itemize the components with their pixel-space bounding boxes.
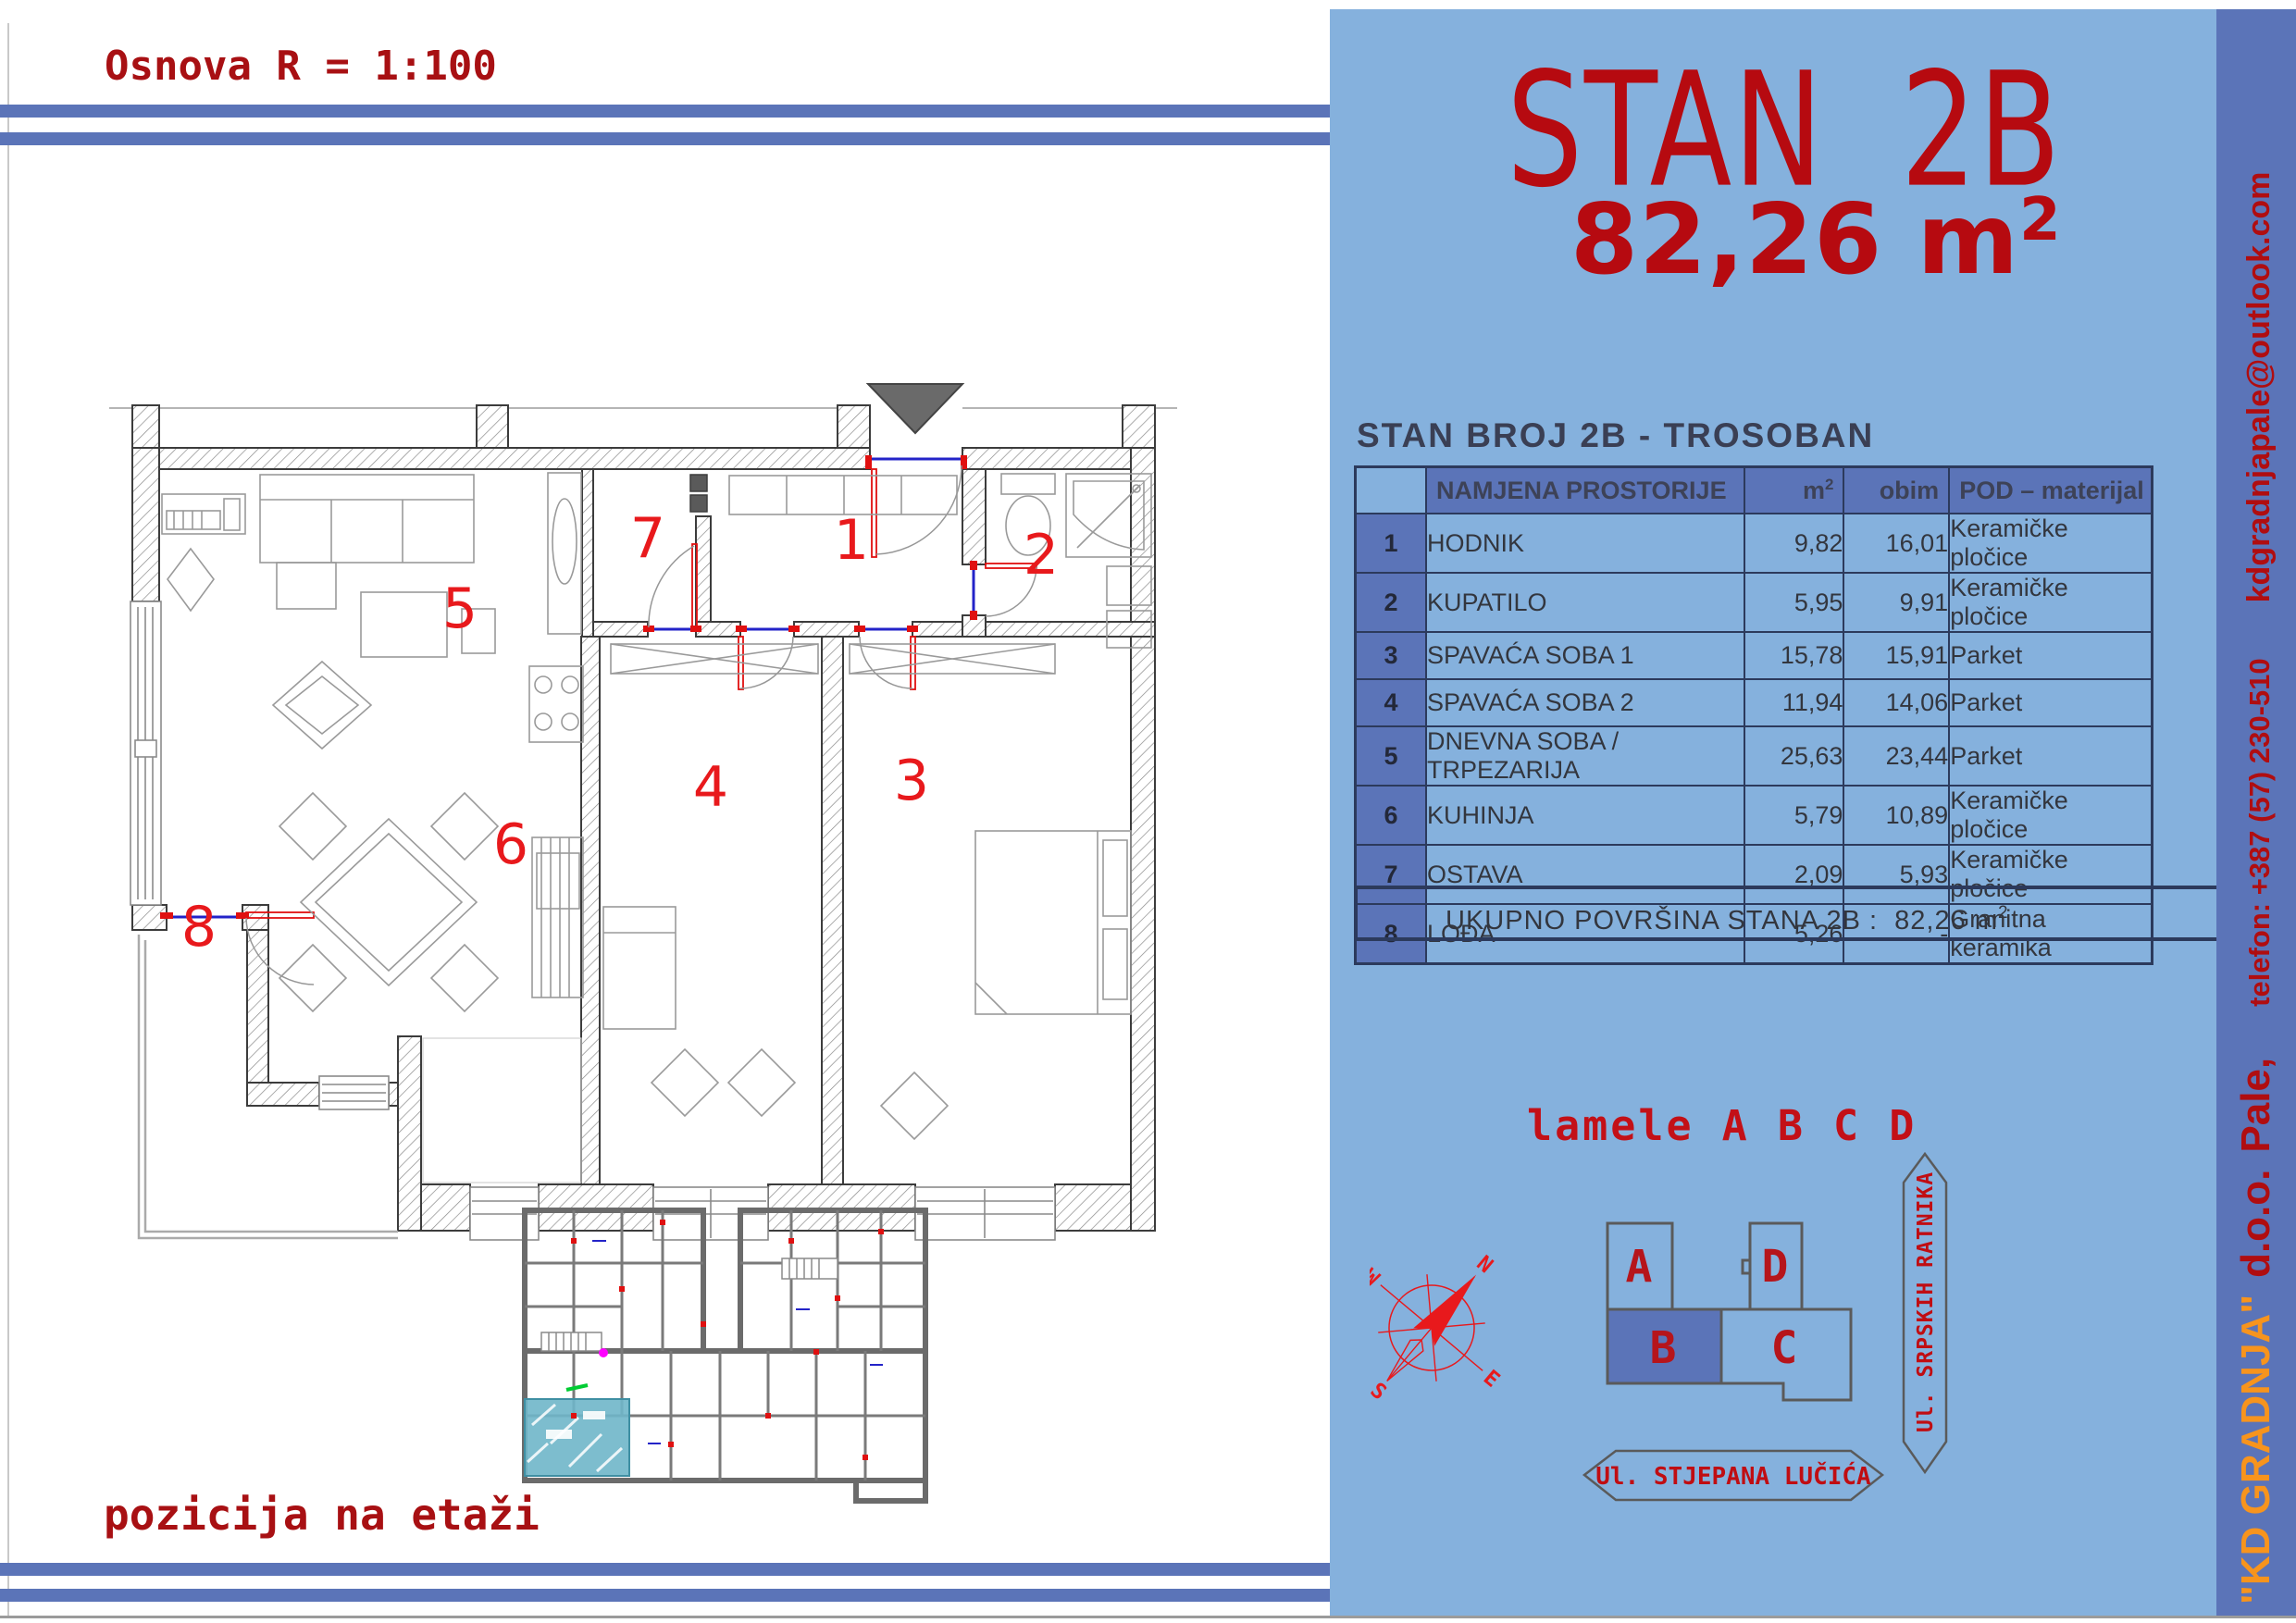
- row-num: 3: [1356, 632, 1427, 679]
- company-name: "KD GRADNJA": [2233, 1295, 2278, 1604]
- total-sup: 2: [1998, 903, 2009, 923]
- block-a-label: A: [1626, 1241, 1653, 1293]
- divider-top-2: [0, 132, 1475, 145]
- block-d-notch: [1743, 1260, 1750, 1273]
- room-number-8: 8: [181, 895, 217, 960]
- street-banner-vertical: Ul. SRPSKIH RATNIKA: [1904, 1154, 1946, 1472]
- compass-rose-icon: N S E W: [1370, 1201, 1558, 1456]
- row-floor: Keramičke pločice: [1949, 514, 2152, 573]
- header-empty: [1356, 467, 1427, 514]
- table-row: 6 KUHINJA 5,79 10,89 Keramičke pločice: [1356, 786, 2153, 845]
- room-number-7: 7: [630, 506, 665, 571]
- divider-bottom-1: [0, 1563, 1475, 1576]
- floor-position-plan: [514, 1198, 939, 1504]
- total-value: 82,26 m: [1894, 906, 1998, 935]
- company-city: Pale,: [2233, 1058, 2278, 1153]
- apartment-area: 82,26 m2: [1570, 183, 2062, 296]
- row-perimeter: 9,91: [1843, 573, 1949, 632]
- row-area: 11,94: [1744, 679, 1844, 726]
- table-total: UKUPNO POVRŠINA STANA 2B : 82,26 m2: [1354, 886, 2241, 941]
- apartment-area-sup: 2: [2019, 186, 2062, 254]
- header-area: m2: [1744, 467, 1844, 514]
- drawing-sheet: Osnova R = 1:100 pozicija na etaži: [0, 0, 2296, 1623]
- compass-west-label: W: [1370, 1265, 1384, 1292]
- row-num: 1: [1356, 514, 1427, 573]
- row-perimeter: 10,89: [1843, 786, 1949, 845]
- company-sidebar: "KD GRADNJA"d.o.o.Pale,telefon: +387 (57…: [2216, 9, 2296, 1616]
- company-sidebar-text: "KD GRADNJA"d.o.o.Pale,telefon: +387 (57…: [2216, 9, 2296, 1616]
- row-name: KUPATILO: [1426, 573, 1744, 632]
- street-horizontal-label: Ul. STJEPANA LUČIĆA: [1595, 1461, 1871, 1491]
- compass-north-label: N: [1472, 1251, 1497, 1278]
- header-name: NAMJENA PROSTORIJE: [1426, 467, 1744, 514]
- row-area: 9,82: [1744, 514, 1844, 573]
- table-row: 2 KUPATILO 5,95 9,91 Keramičke pločice: [1356, 573, 2153, 632]
- row-floor: Parket: [1949, 726, 2152, 786]
- block-d-label: D: [1762, 1241, 1789, 1293]
- floor-position-label: pozicija na etaži: [104, 1490, 540, 1540]
- row-floor: Keramičke pločice: [1949, 786, 2152, 845]
- room-number-3: 3: [894, 749, 929, 813]
- row-num: 6: [1356, 786, 1427, 845]
- room-number-6: 6: [493, 812, 528, 877]
- row-floor: Keramičke pločice: [1949, 573, 2152, 632]
- room-number-1: 1: [834, 508, 869, 573]
- site-diagram: N S E W A D B C Ul. SRPSKIH RATNIKA: [1370, 1101, 1980, 1518]
- table-row: 4 SPAVAĆA SOBA 2 11,94 14,06 Parket: [1356, 679, 2153, 726]
- room-number-5: 5: [442, 576, 478, 641]
- row-perimeter: 14,06: [1843, 679, 1949, 726]
- page-bottom-edge: [0, 1616, 2296, 1618]
- company-phone: telefon: +387 (57) 230-510: [2243, 658, 2276, 1007]
- row-num: 5: [1356, 726, 1427, 786]
- scale-title: Osnova R = 1:100: [105, 43, 497, 90]
- row-num: 4: [1356, 679, 1427, 726]
- header-perimeter: obim: [1843, 467, 1949, 514]
- furniture: [162, 473, 1151, 1183]
- row-floor: Parket: [1949, 679, 2152, 726]
- row-area: 15,78: [1744, 632, 1844, 679]
- row-name: DNEVNA SOBA / TRPEZARIJA: [1426, 726, 1744, 786]
- room-number-4: 4: [693, 755, 728, 820]
- row-area: 5,79: [1744, 786, 1844, 845]
- row-floor: Parket: [1949, 632, 2152, 679]
- divider-top-1: [0, 105, 1475, 118]
- mini-magenta-marker: [599, 1348, 608, 1357]
- row-name: HODNIK: [1426, 514, 1744, 573]
- mini-green-marker: [566, 1385, 588, 1390]
- row-name: SPAVAĆA SOBA 2: [1426, 679, 1744, 726]
- floor-plan: 1 2 3 4 5 6 7 8: [93, 370, 1203, 1258]
- company-email: kdgradnjapale@outlook.com: [2241, 172, 2277, 603]
- row-area: 25,63: [1744, 726, 1844, 786]
- shaft-boxes: [690, 475, 707, 512]
- table-row: 5 DNEVNA SOBA / TRPEZARIJA 25,63 23,44 P…: [1356, 726, 2153, 786]
- row-num: 2: [1356, 573, 1427, 632]
- row-name: SPAVAĆA SOBA 1: [1426, 632, 1744, 679]
- street-banner-horizontal: Ul. STJEPANA LUČIĆA: [1584, 1451, 1882, 1500]
- compass-south-label: S: [1370, 1379, 1391, 1406]
- mini-stairs: [541, 1258, 838, 1351]
- divider-bottom-2: [0, 1589, 1475, 1602]
- row-perimeter: 15,91: [1843, 632, 1949, 679]
- street-vertical-label: Ul. SRPSKIH RATNIKA: [1914, 1171, 1938, 1432]
- row-name: KUHINJA: [1426, 786, 1744, 845]
- entrance-arrow-icon: [868, 384, 962, 433]
- company-legal: d.o.o.: [2233, 1170, 2278, 1278]
- header-floor: POD – materijal: [1949, 467, 2152, 514]
- table-header-row: NAMJENA PROSTORIJE m2 obim POD – materij…: [1356, 467, 2153, 514]
- table-row: 1 HODNIK 9,82 16,01 Keramičke pločice: [1356, 514, 2153, 573]
- page-left-edge: [7, 23, 9, 1616]
- apartment-area-value: 82,26 m: [1570, 183, 2019, 296]
- row-area: 5,95: [1744, 573, 1844, 632]
- row-perimeter: 16,01: [1843, 514, 1949, 573]
- block-b-label: B: [1650, 1322, 1677, 1374]
- table-row: 3 SPAVAĆA SOBA 1 15,78 15,91 Parket: [1356, 632, 2153, 679]
- room-number-2: 2: [1024, 523, 1059, 588]
- table-title: STAN BROJ 2B - TROSOBAN: [1357, 416, 1874, 455]
- row-perimeter: 23,44: [1843, 726, 1949, 786]
- highlighted-unit: [525, 1399, 629, 1476]
- block-c-label: C: [1771, 1322, 1798, 1374]
- total-label: UKUPNO POVRŠINA STANA 2B :: [1446, 906, 1878, 935]
